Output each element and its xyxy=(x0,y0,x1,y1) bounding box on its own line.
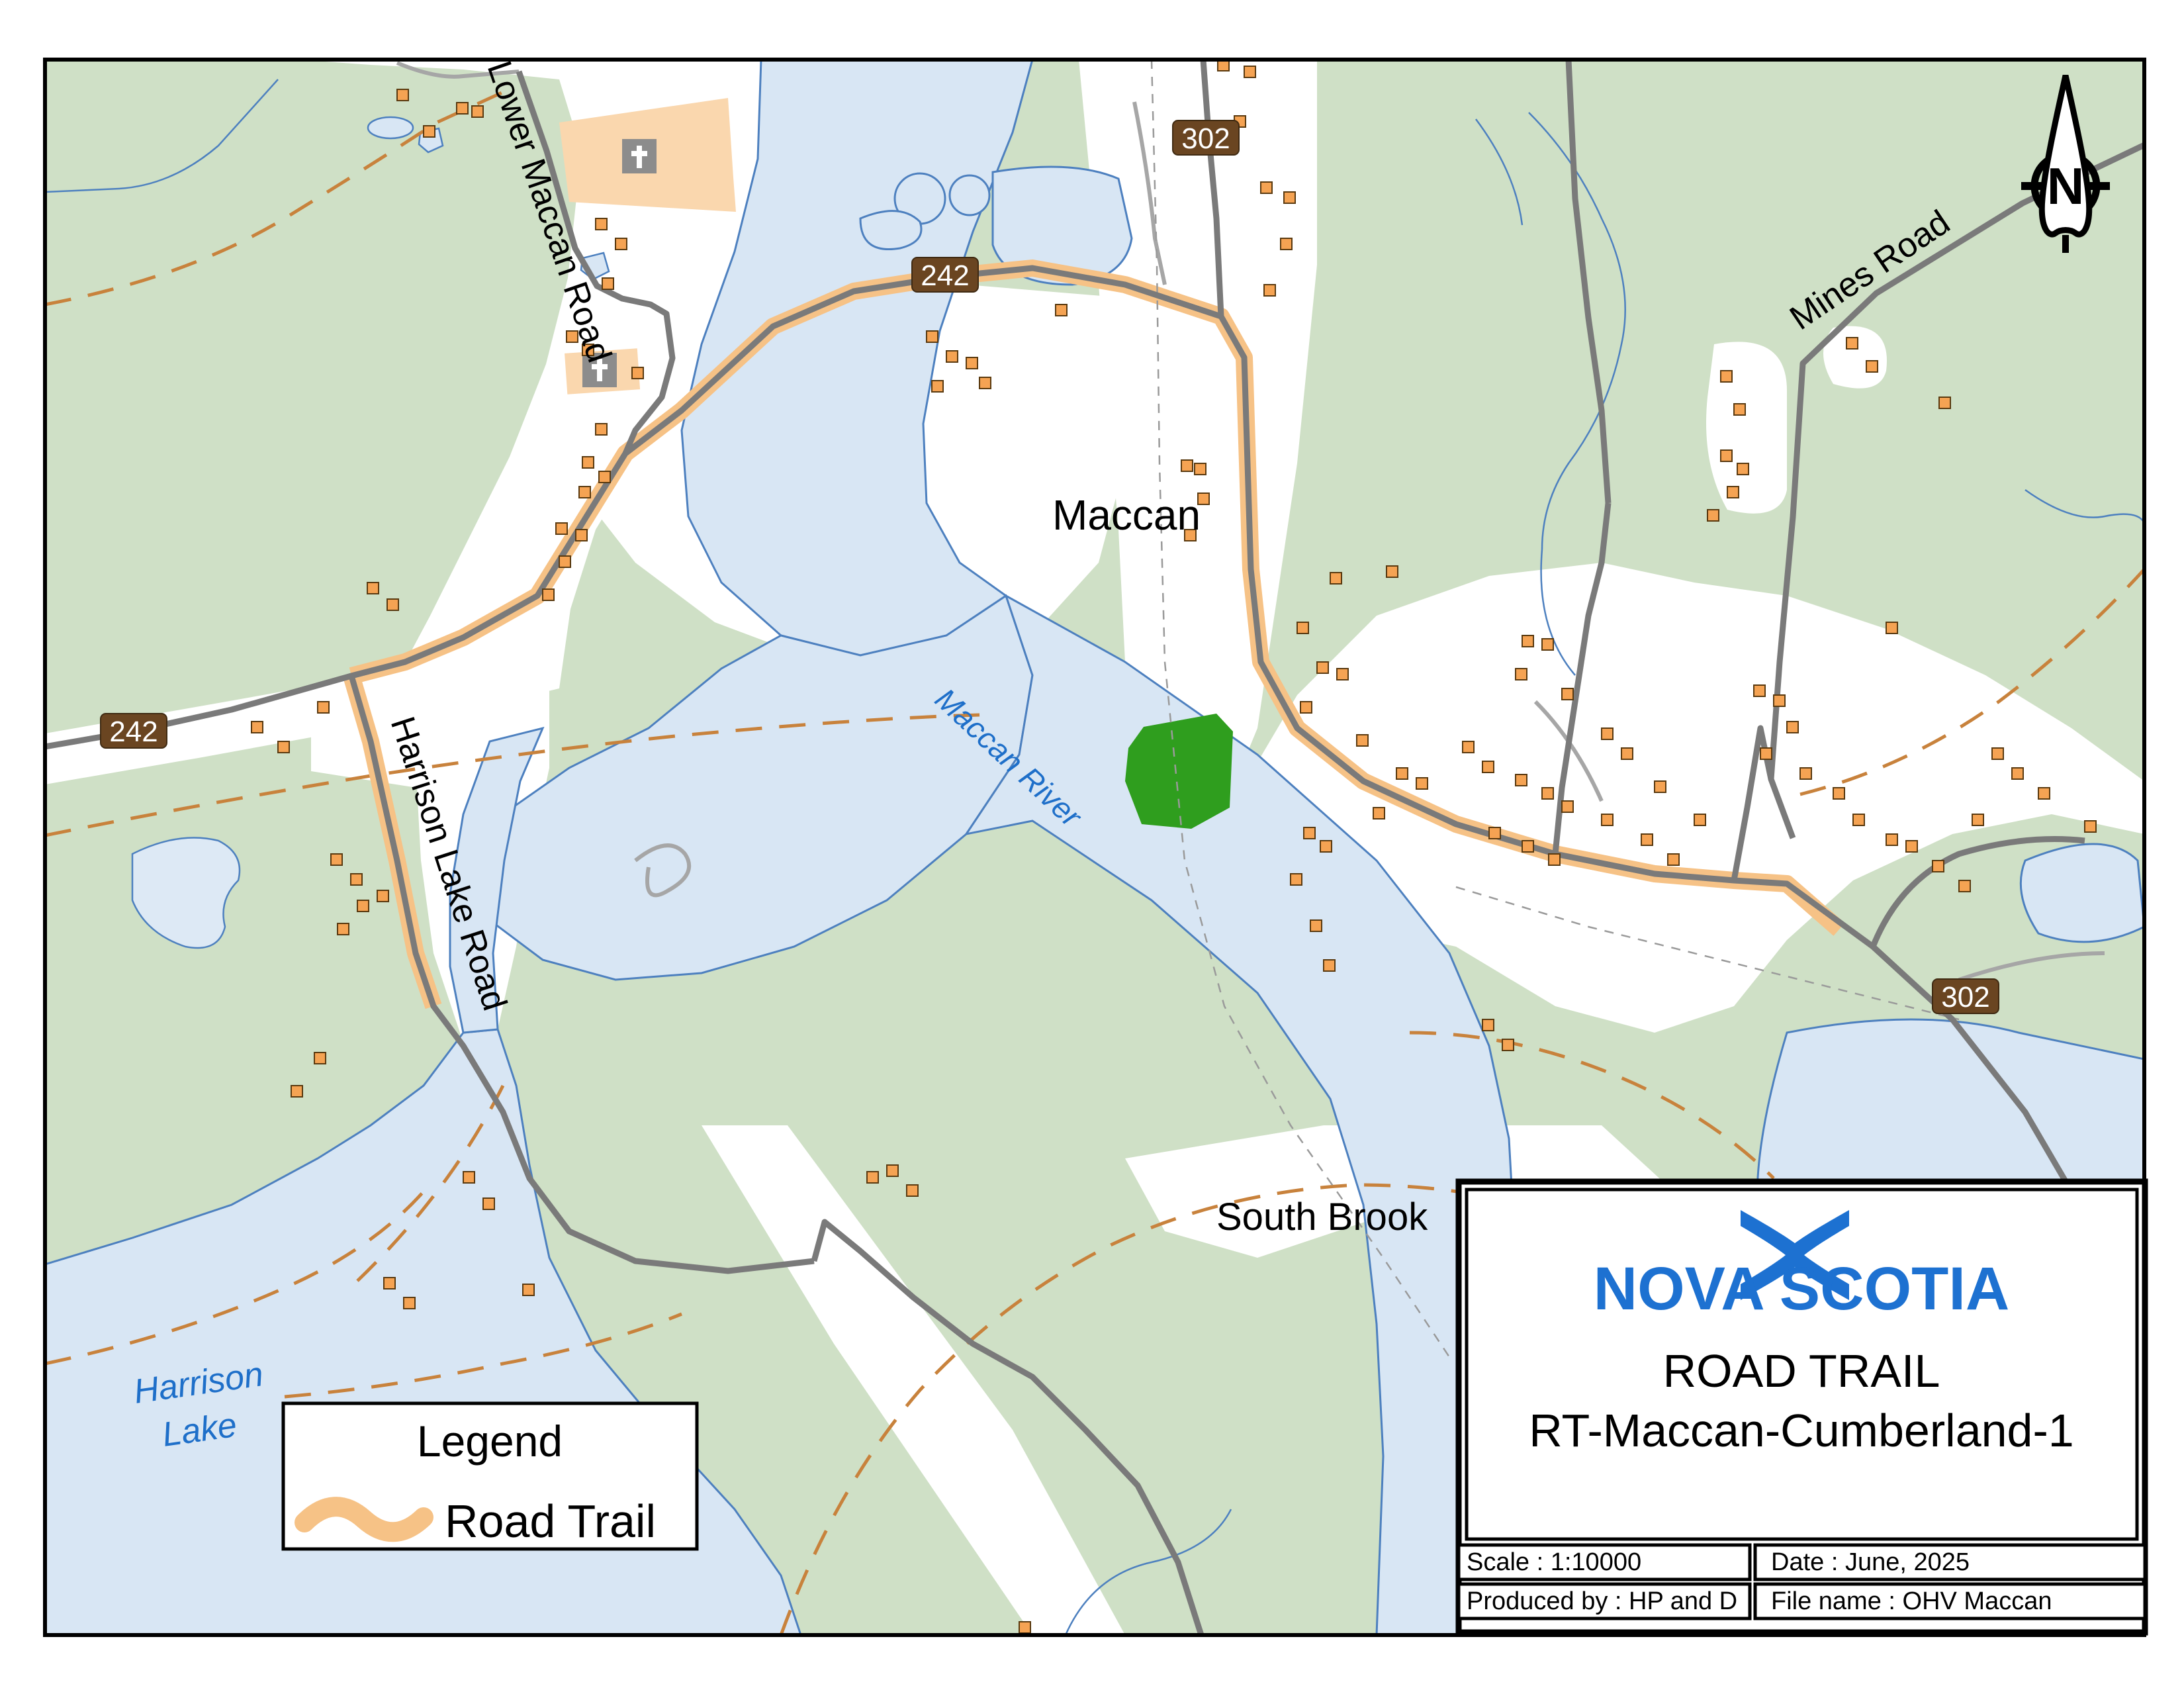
svg-text:Road Trail: Road Trail xyxy=(445,1495,656,1547)
svg-text:Scale : 1:10000: Scale : 1:10000 xyxy=(1467,1548,1641,1576)
svg-text:Produced by : HP and D: Produced by : HP and D xyxy=(1467,1587,1737,1615)
svg-text:South Brook: South Brook xyxy=(1216,1196,1428,1239)
svg-text:Legend: Legend xyxy=(417,1417,563,1466)
svg-text:ROAD TRAIL: ROAD TRAIL xyxy=(1663,1345,1940,1397)
svg-text:302: 302 xyxy=(1181,122,1230,155)
svg-text:Maccan: Maccan xyxy=(1052,491,1201,539)
svg-text:242: 242 xyxy=(109,716,158,748)
svg-text:NOVA SCOTIA: NOVA SCOTIA xyxy=(1594,1255,2010,1323)
svg-text:Date : June, 2025: Date : June, 2025 xyxy=(1771,1548,1970,1576)
svg-text:242: 242 xyxy=(921,259,969,292)
svg-text:RT-Maccan-Cumberland-1: RT-Maccan-Cumberland-1 xyxy=(1529,1405,2073,1456)
svg-text:N: N xyxy=(2047,157,2084,215)
svg-text:File name : OHV Maccan: File name : OHV Maccan xyxy=(1771,1587,2052,1615)
svg-text:302: 302 xyxy=(1941,981,1989,1013)
